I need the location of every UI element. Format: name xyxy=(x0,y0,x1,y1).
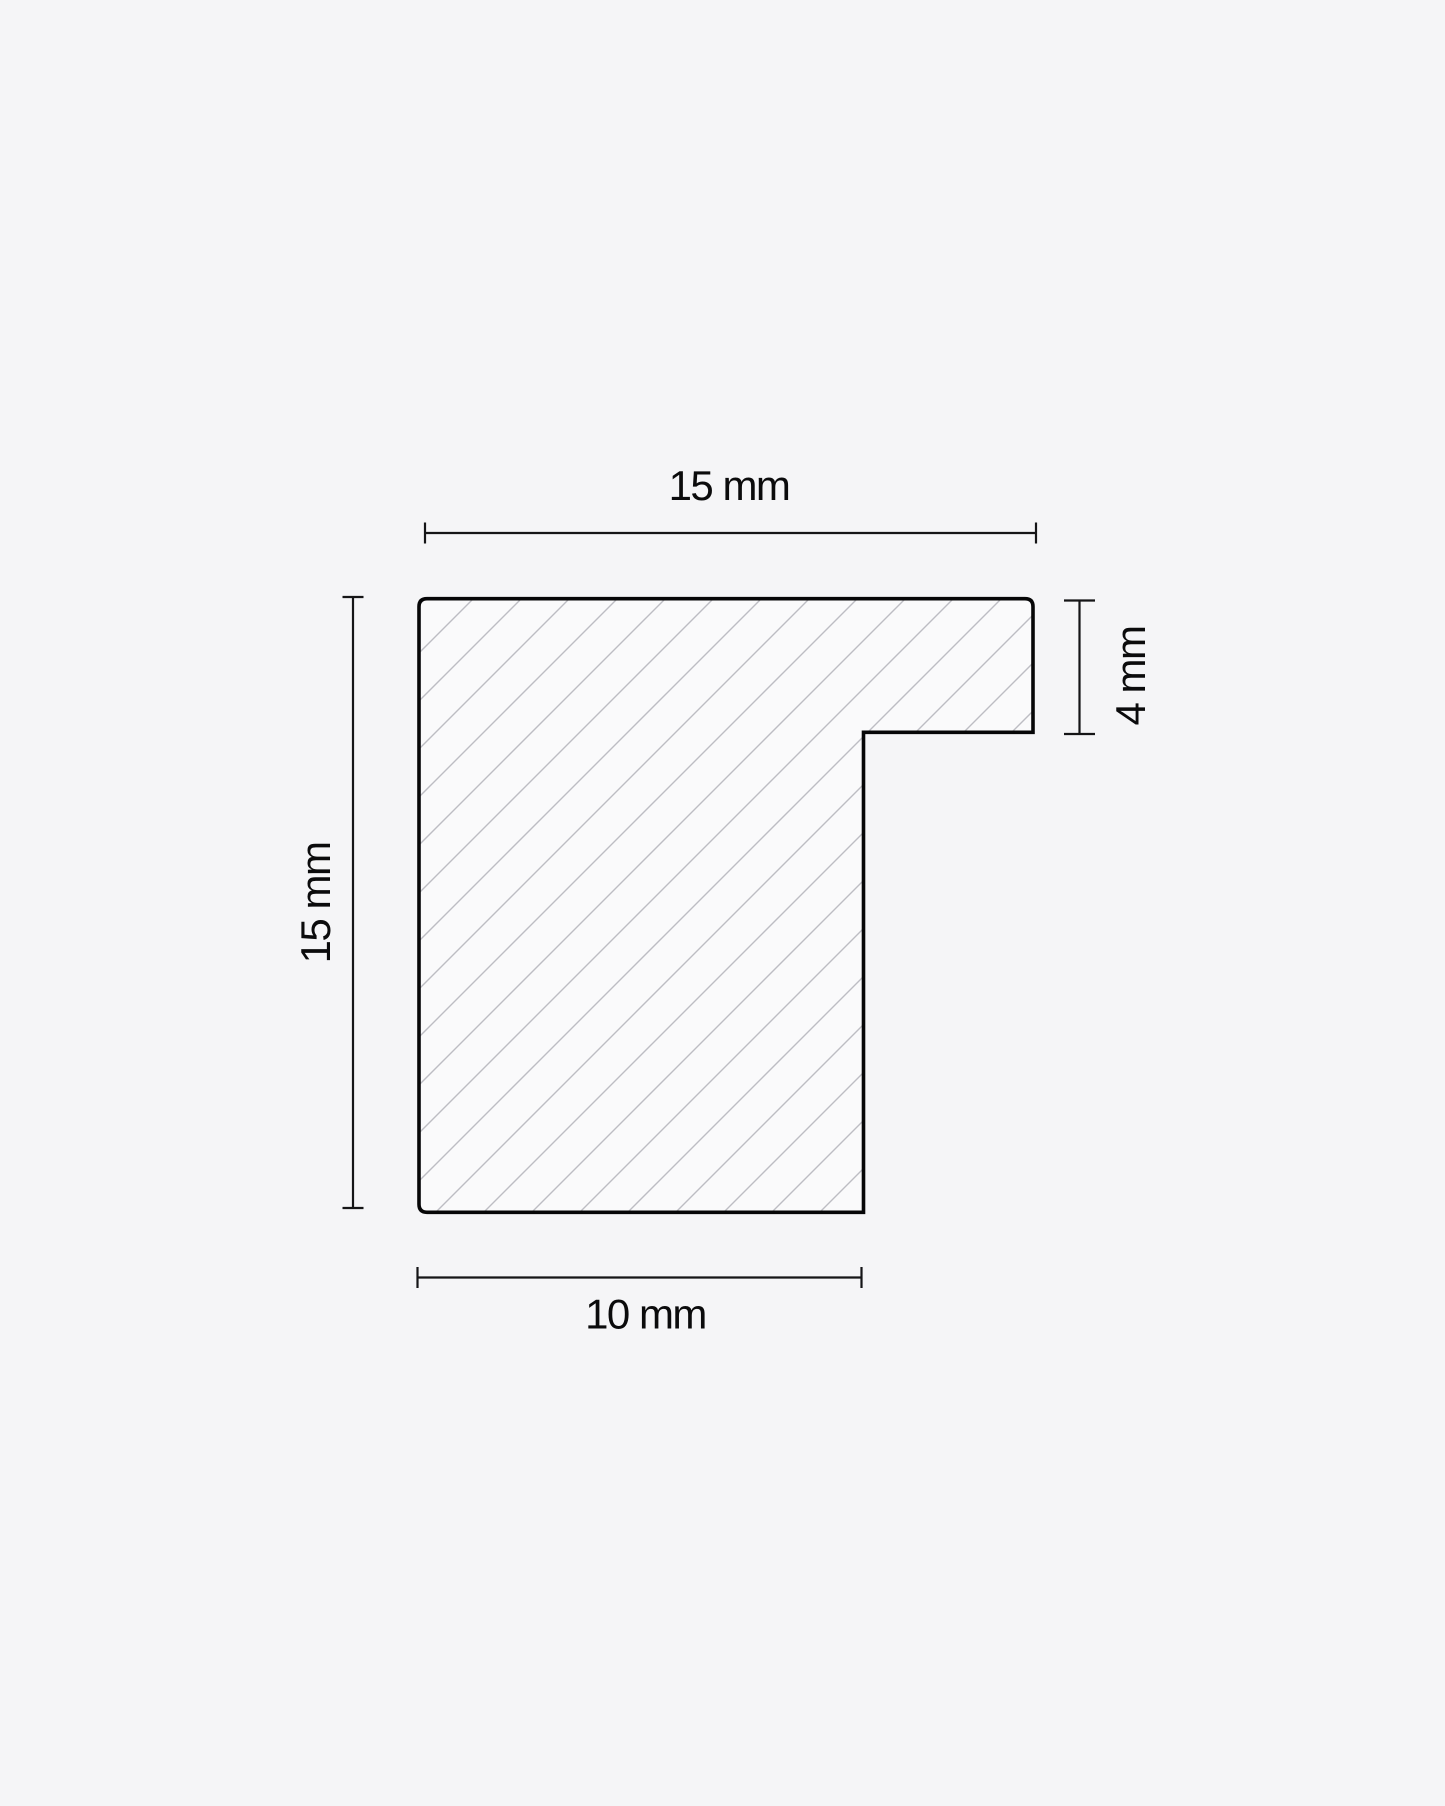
svg-text:15 mm: 15 mm xyxy=(669,462,790,509)
svg-text:15 mm: 15 mm xyxy=(292,843,339,964)
svg-text:4 mm: 4 mm xyxy=(1107,627,1154,726)
svg-text:10 mm: 10 mm xyxy=(585,1291,706,1338)
